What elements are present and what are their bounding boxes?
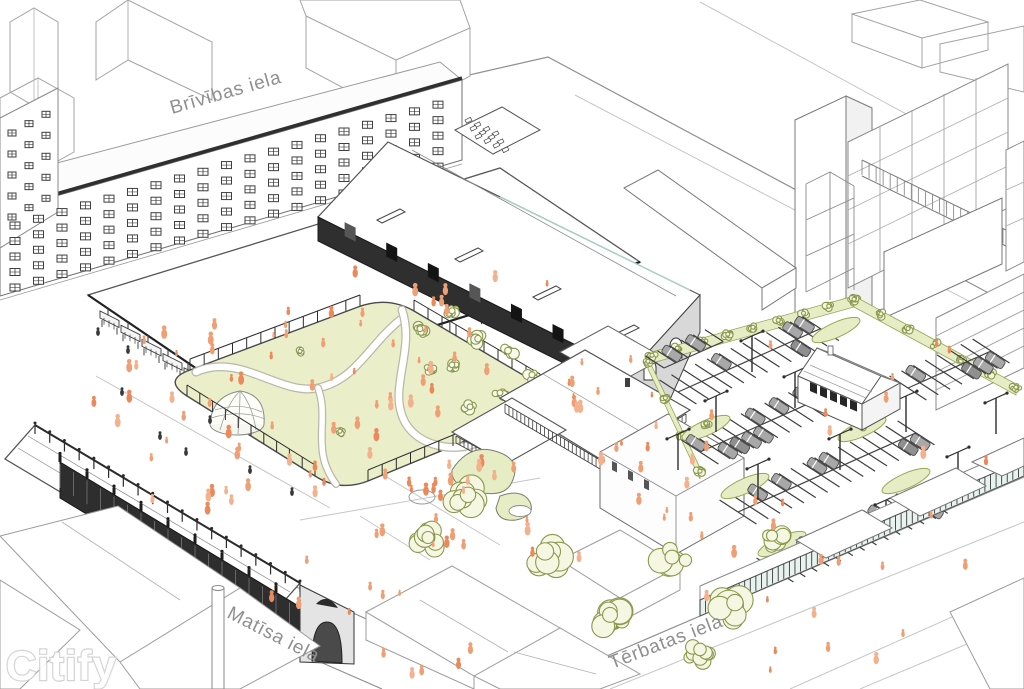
person-figure (948, 346, 952, 354)
person-head (410, 667, 414, 671)
person-figure (322, 478, 326, 486)
person-figure (381, 648, 385, 658)
person-body (165, 439, 168, 444)
person-head (380, 523, 384, 527)
person-head (121, 387, 124, 390)
tree-canopy (726, 332, 730, 336)
person-head (445, 304, 449, 308)
fence-finial (137, 483, 140, 486)
person-figure (373, 428, 379, 441)
person-figure (435, 405, 440, 417)
person-head (732, 545, 736, 549)
person-head (705, 590, 709, 594)
person-figure (208, 398, 212, 407)
tree-canopy (727, 594, 743, 610)
pole-arm (958, 447, 969, 452)
person-figure (651, 392, 654, 398)
person-body (423, 486, 429, 496)
person-head (287, 307, 290, 310)
person-head (374, 428, 379, 433)
person-body (313, 463, 318, 471)
person-head (448, 472, 453, 477)
person-head (206, 489, 210, 493)
person-head (526, 516, 528, 518)
person-body (525, 526, 531, 536)
person-head (637, 493, 641, 497)
person-head (639, 461, 643, 465)
person-head (479, 454, 483, 458)
person-head (135, 360, 138, 363)
person-head (443, 283, 447, 287)
person-figure (398, 590, 401, 596)
person-figure (408, 394, 414, 407)
fence-finial (254, 553, 257, 556)
person-body (666, 508, 669, 513)
fence-finial (299, 580, 302, 583)
stall-divider (695, 364, 713, 376)
person-figure (666, 507, 669, 513)
person-body (447, 462, 451, 469)
person-head (230, 494, 234, 498)
person-figure (424, 326, 427, 333)
person-body (704, 593, 709, 602)
person-head (329, 306, 333, 310)
pole-arm (705, 396, 716, 401)
person-body (884, 395, 889, 403)
person-body (769, 668, 772, 673)
person-body (230, 376, 234, 382)
person-figure (206, 489, 212, 502)
person-body (753, 498, 757, 505)
person-head (902, 629, 905, 632)
person-figure (654, 421, 658, 429)
facade-finial-ball (58, 452, 61, 455)
person-head (369, 582, 372, 585)
person-body (410, 670, 415, 679)
stall-divider (714, 376, 732, 388)
person-figure (224, 486, 228, 495)
person-head (881, 561, 884, 564)
person-head (468, 642, 472, 646)
person-figure (321, 338, 325, 348)
person-head (305, 556, 308, 559)
person-figure (432, 541, 435, 547)
facade-finial-ball (85, 468, 88, 471)
site-plan-illustration: Brīvības iela Matīsa iela Tērbatas iela … (0, 0, 1024, 689)
person-body (826, 644, 831, 651)
person-body (248, 468, 252, 474)
facade-finial-ball (274, 582, 277, 585)
axonometric-drawing: Brīvības iela Matīsa iela Tērbatas iela … (0, 0, 1024, 689)
person-figure (709, 409, 714, 420)
person-figure (355, 416, 361, 429)
person-head (666, 507, 668, 509)
person-body (468, 645, 473, 654)
person-figure (353, 368, 356, 375)
person-head (812, 607, 816, 611)
person-figure (530, 547, 535, 557)
person-head (824, 408, 827, 411)
person-figure (824, 408, 828, 417)
person-head (309, 470, 312, 473)
person-head (165, 437, 167, 439)
person-figure (270, 421, 274, 429)
fence-finial (122, 474, 125, 477)
pole-lamp (967, 446, 970, 449)
person-body (175, 352, 178, 357)
tree-canopy (879, 312, 883, 316)
person-silhouette (120, 387, 124, 396)
person-head (769, 340, 772, 343)
pole-lamp (827, 437, 830, 440)
person-figure (205, 502, 211, 515)
stall-divider (838, 447, 856, 459)
person-head (209, 331, 214, 336)
person-body (312, 489, 317, 498)
person-body (430, 386, 435, 394)
person-head (434, 477, 437, 480)
person-body (375, 531, 379, 538)
person-figure (134, 360, 138, 370)
person-head (272, 332, 274, 334)
person-head (205, 502, 209, 506)
person-body (577, 554, 582, 562)
person-head (493, 270, 497, 274)
tree-canopy (827, 304, 831, 308)
person-body (330, 375, 333, 381)
person-figure (284, 329, 288, 338)
fence-finial (210, 527, 213, 530)
person-head (208, 398, 211, 401)
person-head (361, 308, 364, 311)
person-head (430, 383, 434, 387)
person-body (373, 432, 379, 442)
person-figure (360, 308, 364, 317)
person-body (91, 399, 96, 407)
person-figure (819, 554, 824, 565)
person-body (126, 348, 130, 354)
person-figure (663, 514, 666, 521)
person-figure (126, 359, 132, 372)
person-head (355, 416, 359, 420)
person-body (150, 496, 154, 503)
person-figure (269, 352, 272, 360)
person-head (575, 402, 579, 406)
tree-canopy (417, 326, 423, 332)
person-figure (149, 453, 153, 461)
person-head (143, 335, 146, 338)
person-head (828, 425, 832, 429)
person-body (434, 516, 438, 523)
person-figure (379, 523, 385, 536)
person-head (578, 400, 583, 405)
person-body (286, 309, 290, 315)
person-head (629, 355, 632, 358)
person-body (467, 330, 471, 337)
tree (876, 309, 885, 320)
stall-divider (791, 468, 809, 480)
person-head (837, 556, 840, 559)
tree-canopy (698, 469, 702, 473)
person-figure (388, 398, 394, 410)
person-figure (284, 321, 287, 328)
person-body (412, 287, 418, 297)
person-head (291, 487, 294, 490)
person-body (421, 377, 426, 386)
person-figure (91, 396, 96, 407)
person-figure (901, 629, 905, 637)
person-head (162, 325, 167, 330)
person-head (313, 485, 317, 489)
person-figure (462, 486, 465, 494)
person-head (170, 391, 174, 395)
tree-canopy (1014, 385, 1018, 389)
person-head (766, 596, 768, 598)
stall-divider (766, 333, 784, 345)
pole-lamp (873, 503, 876, 506)
person-body (284, 323, 287, 328)
person-figure (570, 376, 575, 387)
person-body (134, 363, 138, 370)
person-figure (431, 296, 436, 306)
pole-lamp (665, 437, 668, 440)
person-body (891, 375, 894, 381)
fence-finial (284, 571, 287, 574)
pole-arm (985, 398, 996, 403)
person-figure (142, 335, 146, 344)
person-body (355, 420, 361, 429)
facade-finial (140, 504, 143, 511)
tree-canopy (449, 362, 455, 368)
person-figure (614, 442, 618, 452)
stall-divider (771, 420, 789, 432)
person-body (208, 418, 212, 424)
person-head (127, 359, 132, 364)
pole-lamp (782, 375, 785, 378)
person-body (443, 286, 448, 295)
person-body (419, 668, 424, 676)
person-figure (286, 307, 290, 316)
person-head (285, 329, 288, 332)
person-head (213, 318, 217, 322)
person-head (462, 486, 465, 489)
person-figure (690, 454, 695, 465)
person-head (581, 358, 583, 360)
person-head (399, 590, 401, 592)
person-body (874, 655, 879, 664)
person-figure (891, 373, 894, 381)
tree-canopy (449, 308, 455, 314)
person-head (332, 422, 336, 426)
person-head (705, 441, 709, 445)
pole-arm (996, 393, 1007, 398)
person-figure (412, 283, 418, 296)
facade-finial-ball (139, 501, 142, 504)
person-body (771, 522, 776, 530)
person-head (685, 477, 689, 481)
facade-finial-ball (220, 550, 223, 553)
person-body (391, 342, 395, 348)
person-head (428, 361, 433, 366)
person-figure (391, 339, 395, 347)
person-head (323, 478, 326, 481)
pole-lamp (745, 467, 748, 470)
person-body (663, 516, 666, 521)
person-body (570, 379, 575, 387)
pole-arm (906, 391, 917, 396)
person-figure (421, 374, 426, 386)
person-body (329, 309, 334, 318)
person-body (359, 322, 362, 327)
person-body (182, 414, 186, 421)
person-head (239, 371, 244, 376)
stall-divider (797, 486, 815, 498)
citify-logo: Citify (6, 642, 117, 689)
tree-canopy (766, 530, 777, 541)
person-body (158, 434, 162, 440)
stall-divider (683, 369, 701, 381)
facade-finial (113, 488, 116, 495)
person-figure (580, 358, 583, 365)
person-figure (447, 459, 451, 469)
person-body (305, 558, 309, 564)
person-body (901, 631, 905, 637)
person-head (448, 459, 451, 462)
person-figure (208, 331, 214, 344)
person-head (92, 396, 96, 400)
person-figure (525, 516, 528, 523)
person-figure (646, 442, 650, 452)
person-head (249, 465, 252, 468)
person-body (920, 449, 926, 459)
person-head (392, 339, 395, 342)
person-body (321, 340, 325, 347)
person-body (574, 405, 579, 413)
person-head (159, 431, 162, 434)
fence-finial (240, 544, 243, 547)
person-head (150, 453, 153, 456)
person-figure (423, 483, 429, 496)
person-body (439, 298, 444, 307)
tree (592, 598, 633, 638)
person-head (185, 447, 188, 450)
pole-lamp (687, 428, 690, 431)
person-head (774, 646, 777, 649)
person-figure (452, 352, 457, 362)
tree (701, 420, 712, 428)
person-head (439, 490, 443, 494)
person-body (819, 557, 824, 565)
person-body (629, 357, 632, 363)
stall-divider (785, 491, 803, 503)
person-body (492, 473, 497, 481)
person-head (353, 368, 355, 370)
person-figure (781, 498, 785, 506)
person-figure (572, 393, 575, 399)
person-figure (577, 551, 582, 562)
fence-finial (34, 422, 37, 425)
person-body (388, 401, 394, 410)
person-body (208, 335, 214, 345)
tree-canopy (646, 359, 650, 363)
person-body (433, 479, 437, 486)
fence-finial (92, 457, 95, 460)
person-figure (182, 411, 186, 421)
person-head (270, 590, 274, 594)
person-body (353, 269, 358, 278)
person-body (546, 282, 549, 287)
person-head (891, 373, 894, 376)
person-figure (367, 447, 372, 459)
person-figure (305, 556, 309, 565)
tree-canopy (536, 543, 553, 560)
tree (693, 467, 705, 477)
person-body (781, 501, 785, 507)
person-figure (310, 379, 315, 391)
tree-canopy (338, 429, 342, 433)
fence-finial (48, 430, 51, 433)
person-head (826, 642, 830, 646)
person-body (269, 354, 272, 360)
person-head (485, 363, 489, 367)
person-body (161, 329, 167, 339)
person-figure (443, 283, 448, 295)
person-body (444, 307, 449, 315)
person-figure (330, 373, 333, 381)
person-figure (433, 477, 437, 486)
person-head (451, 528, 455, 532)
person-head (225, 486, 228, 489)
stall-divider (690, 387, 708, 399)
stall-divider (845, 464, 863, 476)
person-figure (689, 512, 693, 522)
person-body (226, 428, 232, 438)
person-figure (493, 270, 498, 282)
person-body (948, 348, 952, 354)
tree-canopy (422, 532, 434, 544)
person-body (881, 564, 885, 570)
person-body (646, 444, 650, 451)
person-figure (700, 531, 703, 539)
person-body (448, 476, 454, 486)
person-head (210, 484, 215, 489)
person-head (710, 409, 714, 413)
person-head (436, 405, 440, 409)
person-silhouette (96, 327, 100, 336)
person-silhouette (290, 487, 294, 496)
person-body (827, 428, 832, 436)
person-head (570, 376, 574, 380)
person-head (421, 374, 425, 378)
person-figure (492, 470, 497, 480)
person-figure (881, 561, 885, 570)
light-pole (983, 392, 1008, 435)
person-silhouette (126, 345, 130, 354)
fence-finial (107, 465, 110, 468)
person-figure (238, 371, 244, 384)
person-figure (353, 265, 358, 277)
person-head (948, 346, 951, 349)
person-body (432, 543, 435, 547)
person-body (812, 610, 817, 618)
person-body (212, 321, 217, 329)
person-head (127, 345, 130, 348)
fence-finial (78, 448, 81, 451)
person-body (431, 299, 436, 306)
person-head (651, 392, 653, 394)
person-body (142, 338, 146, 344)
person-body (235, 450, 241, 459)
